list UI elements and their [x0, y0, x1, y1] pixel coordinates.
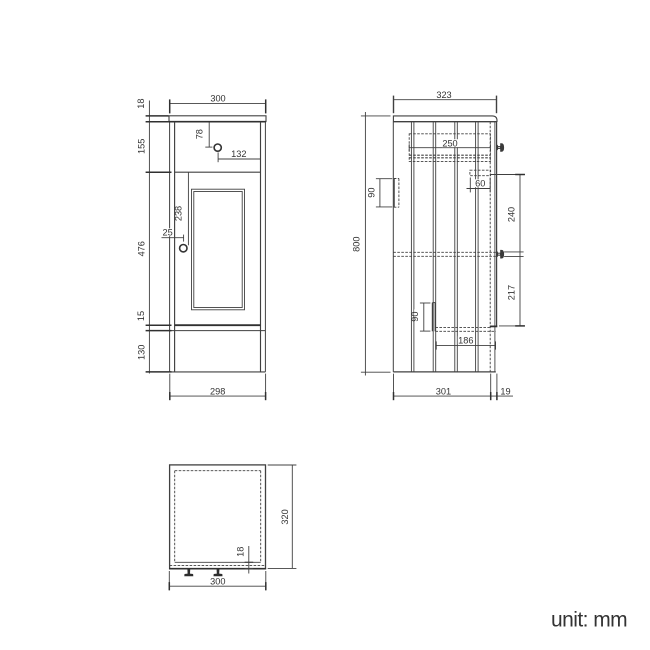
svg-text:217: 217 [507, 285, 517, 300]
svg-text:238: 238 [173, 206, 183, 221]
svg-text:300: 300 [210, 94, 225, 104]
svg-text:300: 300 [210, 576, 225, 586]
svg-text:90: 90 [410, 311, 420, 321]
svg-text:60: 60 [475, 179, 485, 189]
svg-text:25: 25 [162, 228, 172, 238]
svg-text:78: 78 [195, 129, 205, 139]
svg-text:18: 18 [136, 98, 146, 108]
svg-text:90: 90 [367, 187, 377, 197]
svg-text:476: 476 [136, 241, 146, 256]
svg-text:301: 301 [436, 386, 451, 396]
svg-text:130: 130 [137, 345, 147, 360]
svg-text:15: 15 [136, 311, 146, 321]
svg-text:155: 155 [136, 139, 146, 154]
svg-text:18: 18 [235, 547, 245, 557]
svg-text:240: 240 [507, 207, 517, 222]
svg-text:19: 19 [500, 386, 510, 396]
svg-text:320: 320 [280, 509, 290, 524]
svg-text:250: 250 [442, 138, 457, 148]
svg-text:800: 800 [352, 237, 362, 252]
svg-text:132: 132 [231, 149, 246, 159]
svg-text:323: 323 [436, 90, 451, 100]
svg-text:186: 186 [458, 335, 473, 345]
svg-text:unit: mm: unit: mm [551, 609, 627, 632]
svg-text:298: 298 [210, 386, 225, 396]
